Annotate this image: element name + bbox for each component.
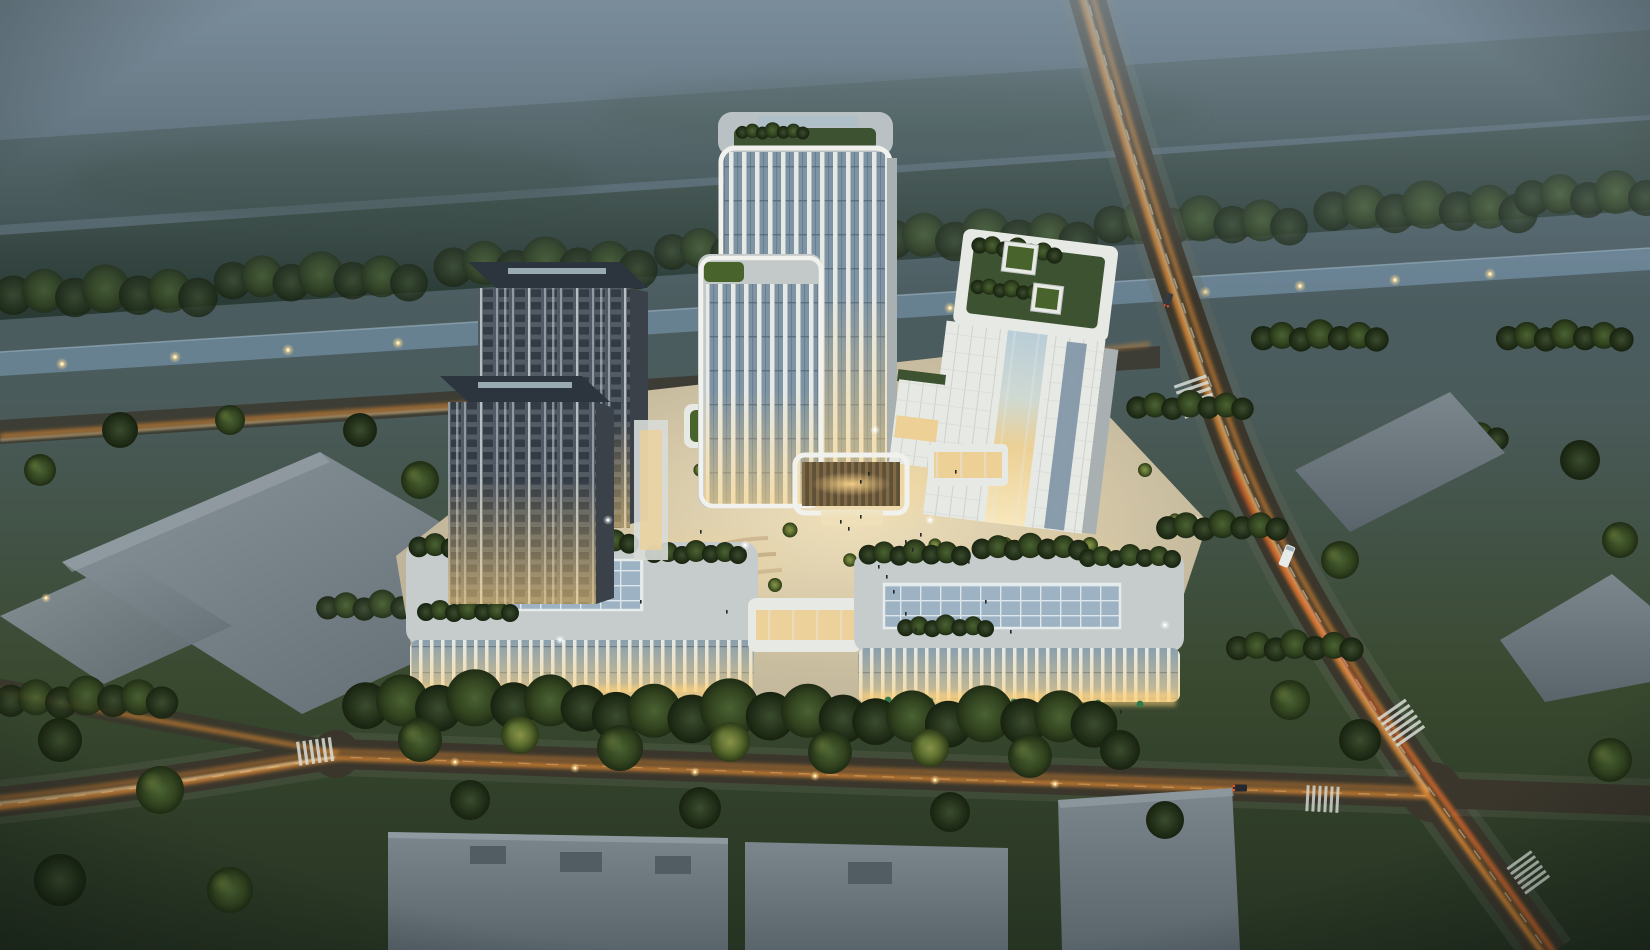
rendering-canvas bbox=[0, 0, 1650, 950]
vignette bbox=[0, 0, 1650, 950]
architectural-rendering bbox=[0, 0, 1650, 950]
